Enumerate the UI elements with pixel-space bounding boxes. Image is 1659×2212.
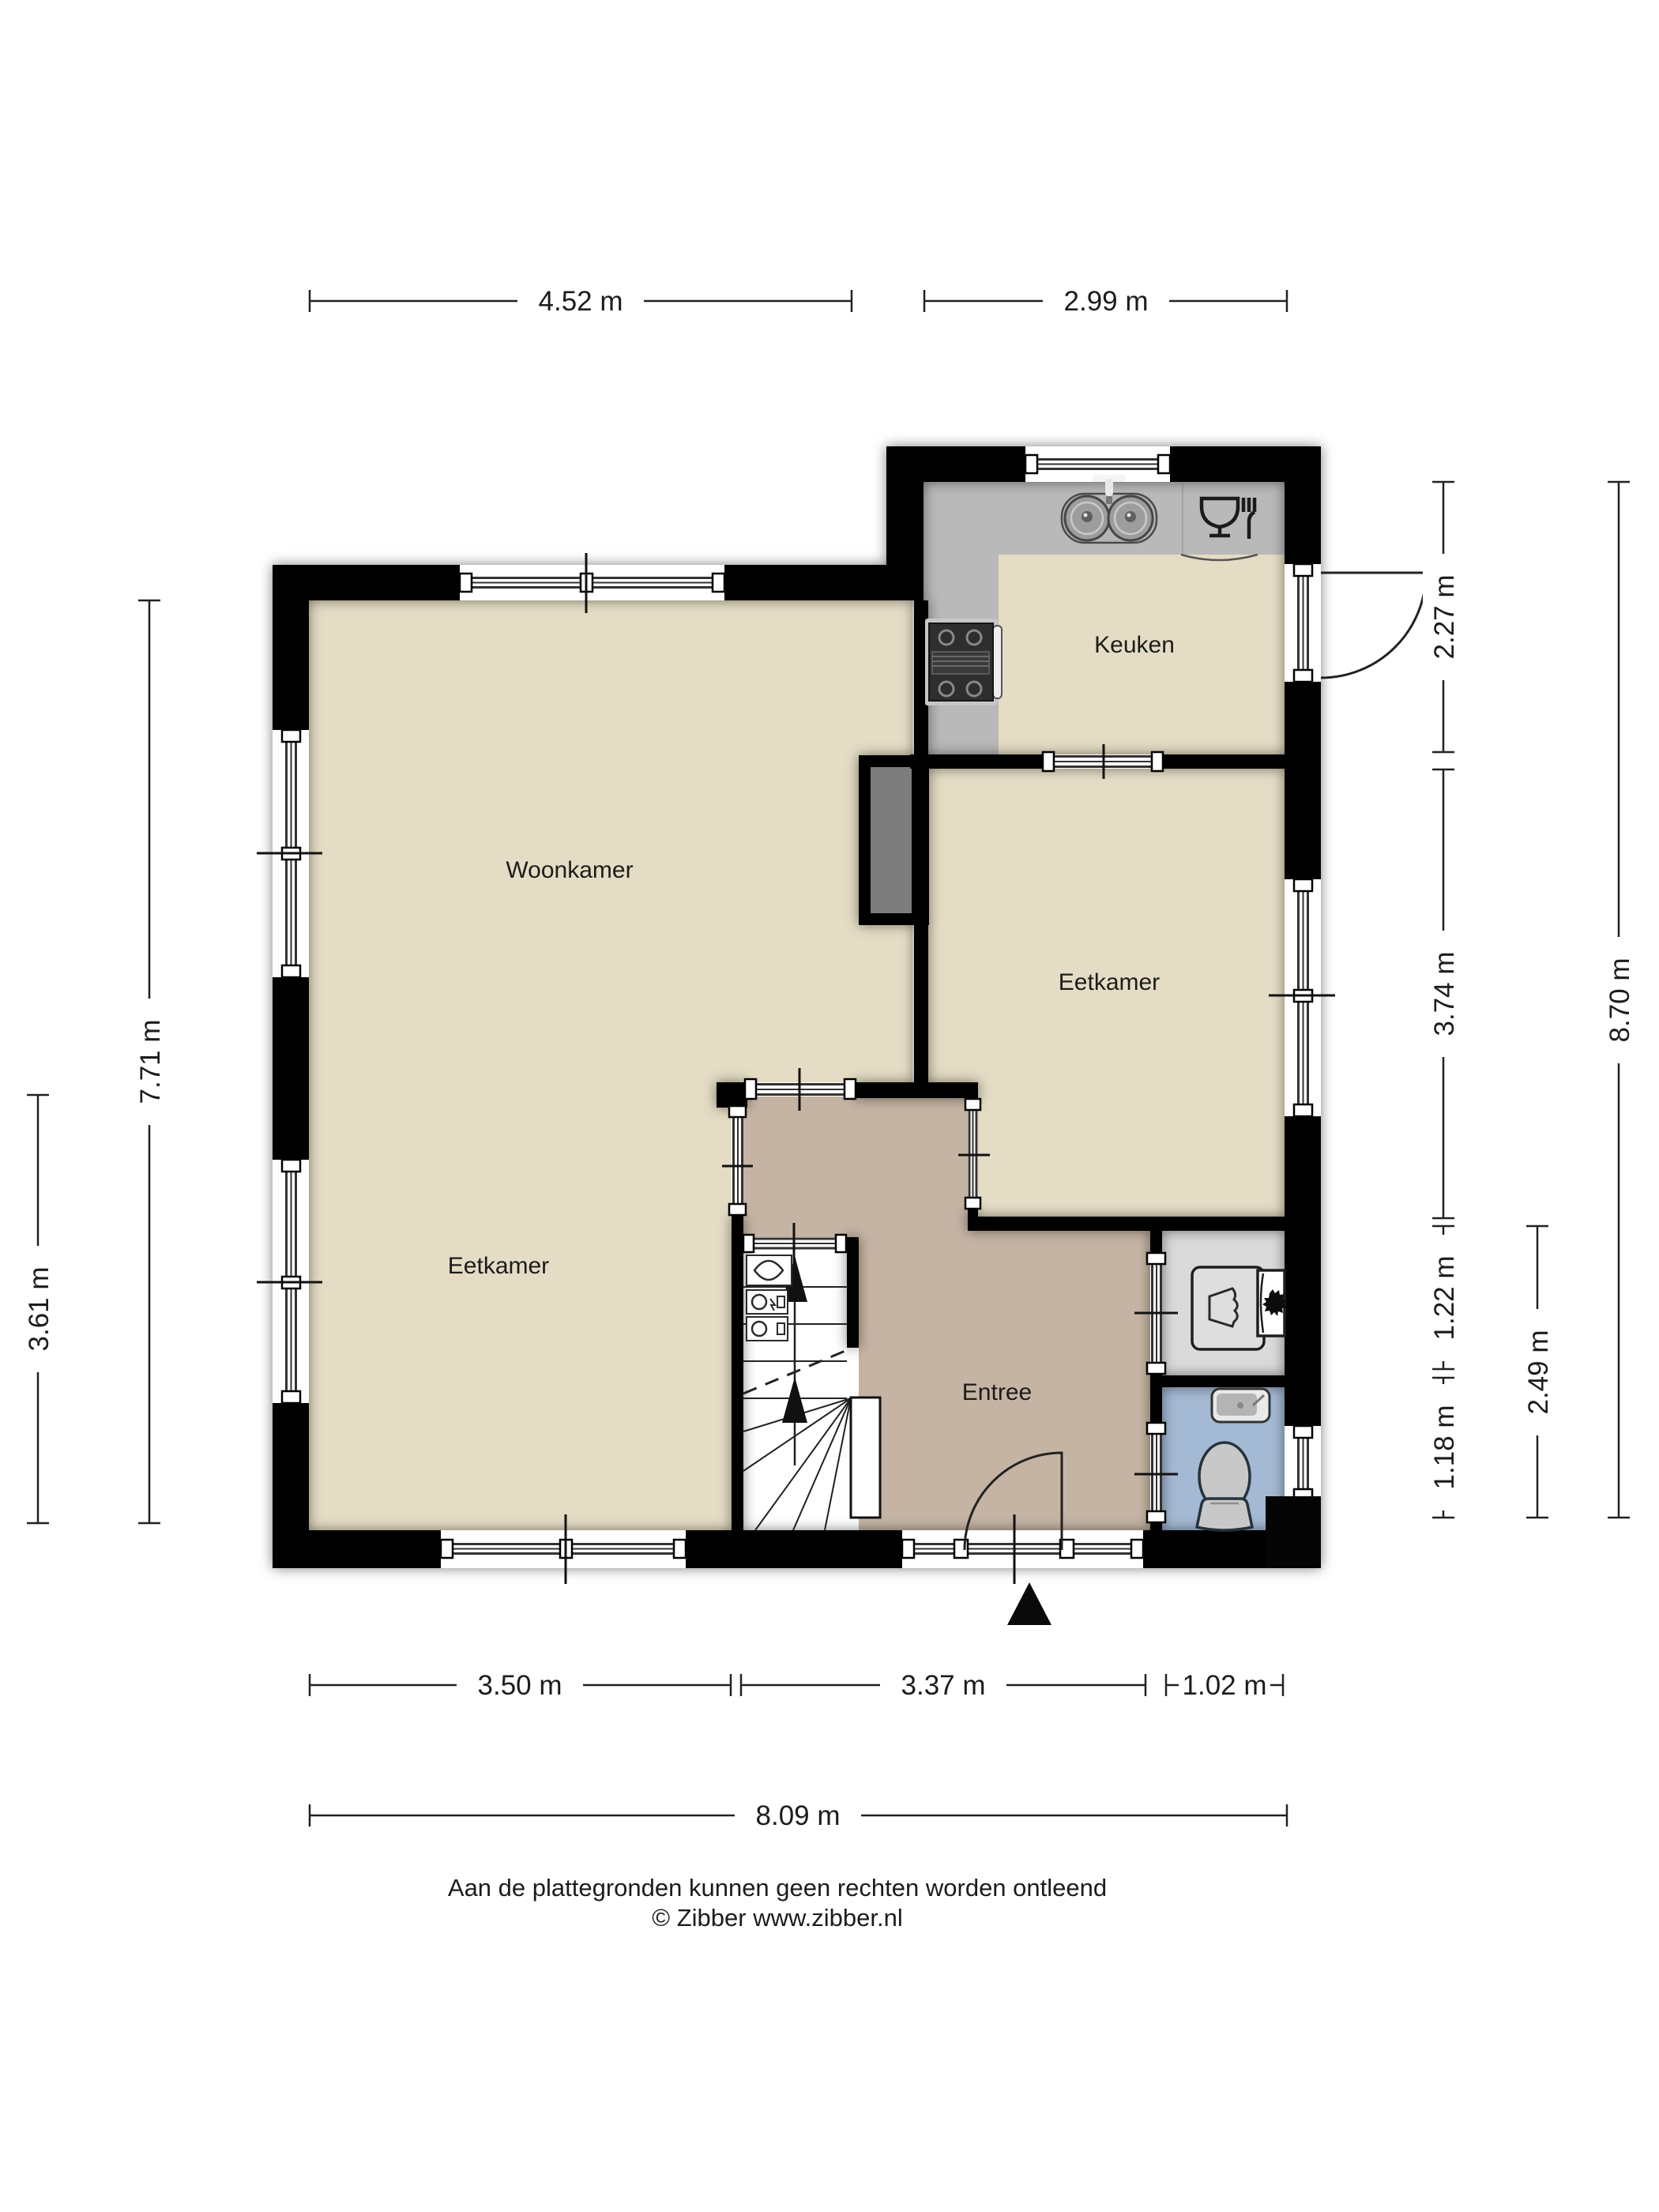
svg-text:2.99 m: 2.99 m: [1064, 286, 1149, 317]
svg-text:8.70 m: 8.70 m: [1604, 958, 1635, 1043]
svg-text:Aan de plattegronden kunnen ge: Aan de plattegronden kunnen geen rechten…: [448, 1874, 1107, 1902]
svg-text:Woonkamer: Woonkamer: [506, 857, 633, 883]
svg-text:1.22 m: 1.22 m: [1429, 1256, 1460, 1341]
svg-text:Eetkamer: Eetkamer: [1059, 969, 1160, 995]
svg-text:7.71 m: 7.71 m: [135, 1020, 166, 1104]
svg-text:4.52 m: 4.52 m: [539, 286, 623, 317]
svg-text:3.50 m: 3.50 m: [478, 1670, 562, 1701]
svg-text:Eetkamer: Eetkamer: [448, 1253, 549, 1279]
svg-text:3.74 m: 3.74 m: [1429, 952, 1460, 1036]
svg-text:3.61 m: 3.61 m: [24, 1267, 55, 1352]
svg-text:3.37 m: 3.37 m: [901, 1670, 986, 1701]
svg-text:8.09 m: 8.09 m: [756, 1800, 841, 1831]
svg-text:1.18 m: 1.18 m: [1429, 1405, 1460, 1490]
svg-text:Entree: Entree: [962, 1379, 1032, 1405]
svg-text:Keuken: Keuken: [1094, 632, 1175, 658]
svg-text:© Zibber www.zibber.nl: © Zibber www.zibber.nl: [652, 1904, 902, 1932]
svg-text:2.27 m: 2.27 m: [1429, 575, 1460, 660]
svg-text:1.02 m: 1.02 m: [1183, 1670, 1267, 1701]
svg-text:2.49 m: 2.49 m: [1523, 1330, 1554, 1415]
